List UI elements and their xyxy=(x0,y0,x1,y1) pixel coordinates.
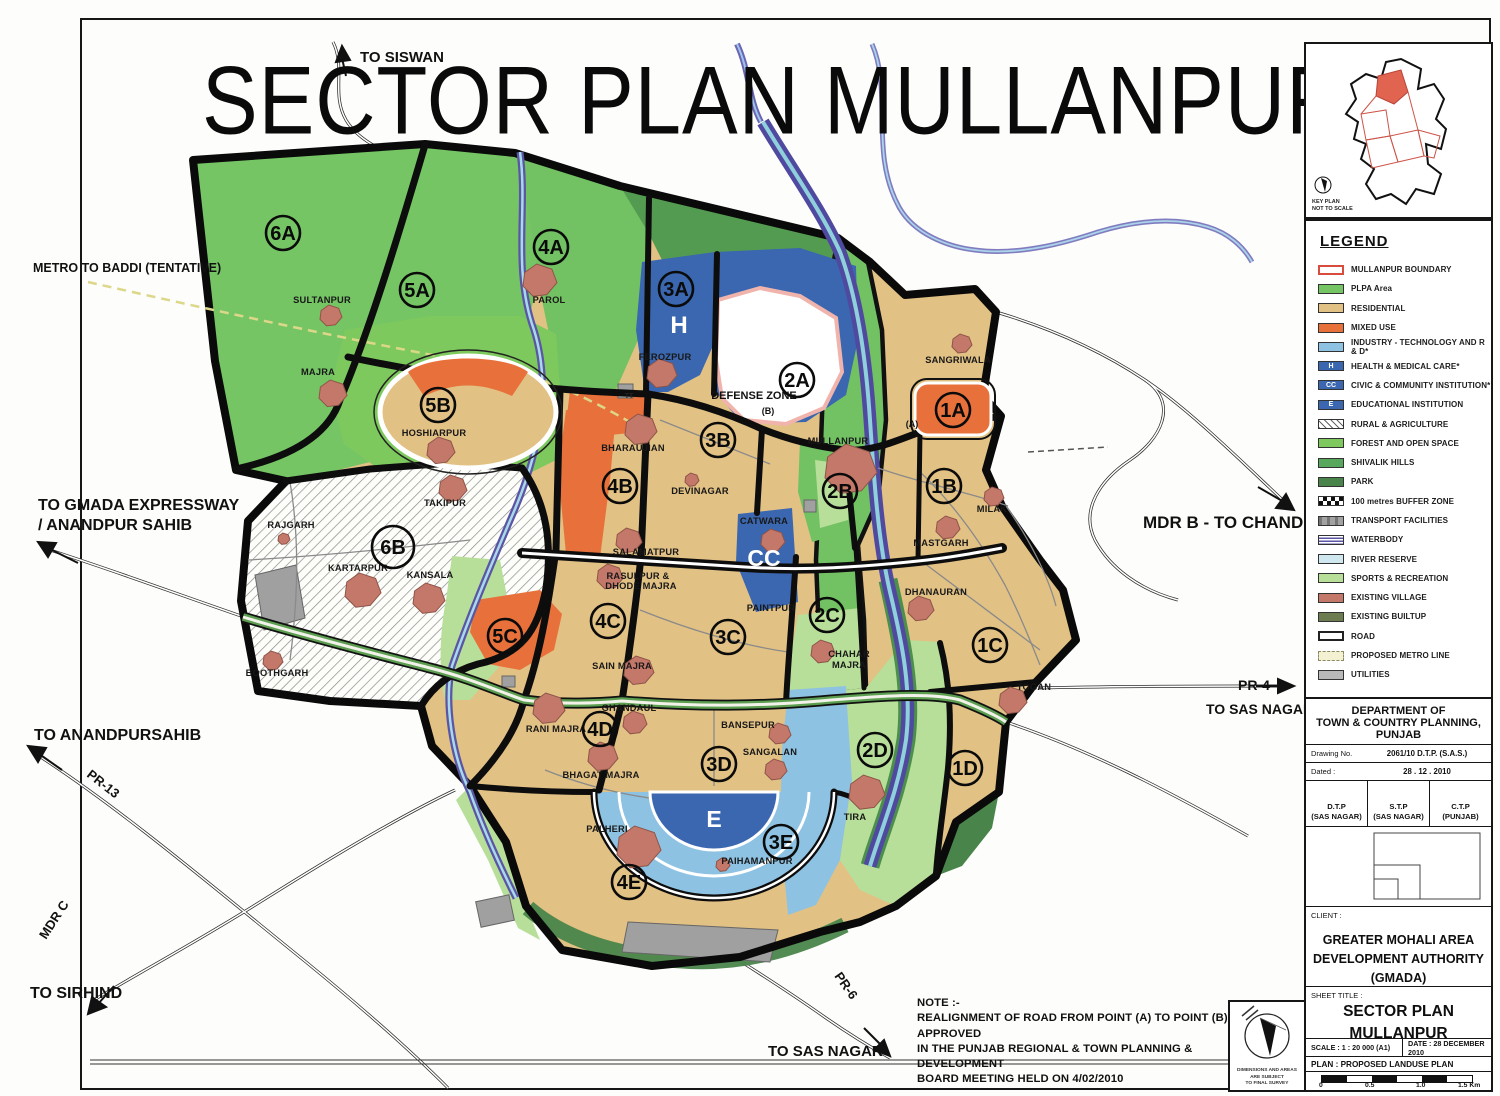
village-label: PALHERI xyxy=(586,824,628,834)
legend-label: EXISTING VILLAGE xyxy=(1351,593,1427,602)
road-label: TO SAS NAGAR xyxy=(1206,701,1313,717)
sector-label: 1A xyxy=(940,400,966,422)
note-line: IN THE PUNJAB REGIONAL & TOWN PLANNING &… xyxy=(917,1042,1257,1073)
scalebar-0: 0 xyxy=(1319,1082,1323,1089)
village-label: CATWARA xyxy=(740,516,788,526)
zone-label: E xyxy=(706,806,721,832)
drawing-no-row: Drawing No. 2061/10 D.T.P. (S.A.S.) xyxy=(1306,745,1491,763)
village-label: PAIHAMANPUR xyxy=(721,856,792,866)
village-label: SULTANPUR xyxy=(293,295,351,305)
road-label: MDR C xyxy=(36,897,72,941)
sector-label: 5B xyxy=(425,395,451,417)
village-label: MULLANPUR xyxy=(808,436,869,446)
legend-label: FOREST AND OPEN SPACE xyxy=(1351,439,1459,448)
legend-item: RURAL & AGRICULTURE xyxy=(1318,414,1491,433)
landuse-map: SULTANPURMAJRAPAROLFEROZPURSANGRIWALAMUL… xyxy=(0,0,1500,1096)
village-label: BHARAUJIAN xyxy=(601,443,665,453)
zone-label: H xyxy=(780,306,797,333)
sheet-title-row: SHEET TITLE : SECTOR PLAN MULLANPUR xyxy=(1306,987,1491,1039)
village-label: CHAHAR xyxy=(828,649,870,659)
legend-swatch xyxy=(1318,284,1344,294)
village-label: FEROZPUR xyxy=(639,352,692,362)
client-line2: DEVELOPMENT AUTHORITY xyxy=(1306,950,1491,969)
legend-item: EXISTING VILLAGE xyxy=(1318,588,1491,607)
legend-item: PARK xyxy=(1318,472,1491,491)
legend-swatch xyxy=(1318,554,1344,564)
map-note: NOTE :-REALIGNMENT OF ROAD FROM POINT (A… xyxy=(917,996,1257,1088)
keyplan-north-icon xyxy=(1315,177,1331,193)
village-label: SANGALAN xyxy=(743,747,797,757)
client-label: CLIENT : xyxy=(1311,911,1342,920)
sector-label: 1D xyxy=(952,758,978,780)
date-value: DATE : 28 DECEMBER 2010 xyxy=(1403,1039,1491,1056)
legend-swatch-glyph: CC xyxy=(1326,382,1336,389)
legend-item: EXISTING BUILTUP xyxy=(1318,607,1491,626)
dated-label: Dated : xyxy=(1306,767,1363,776)
legend-title: LEGEND xyxy=(1320,233,1491,250)
legend-swatch xyxy=(1318,631,1344,641)
officer-cell: S.T.P (SAS NAGAR) xyxy=(1368,781,1430,826)
legend-item: SPORTS & RECREATION xyxy=(1318,569,1491,588)
sector-label: 2B xyxy=(827,481,853,503)
legend-swatch: CC xyxy=(1318,380,1344,390)
legend-item: PLPA Area xyxy=(1318,279,1491,298)
legend-label: MULLANPUR BOUNDARY xyxy=(1351,265,1452,274)
client-row: CLIENT : GREATER MOHALI AREA DEVELOPMENT… xyxy=(1306,907,1491,987)
legend-swatch: E xyxy=(1318,400,1344,410)
key-plan-inset: KEY PLAN NOT TO SCALE xyxy=(1304,42,1493,219)
village-label: RANI MAJRA xyxy=(526,724,586,734)
legend-label: PROPOSED METRO LINE xyxy=(1351,651,1450,660)
legend-swatch xyxy=(1318,419,1344,429)
dated-row: Dated : 28 . 12 . 2010 xyxy=(1306,763,1491,781)
sector-label: 3A xyxy=(663,279,689,301)
village-label: HOSHIARPUR xyxy=(402,428,467,438)
legend-items: MULLANPUR BOUNDARYPLPA AreaRESIDENTIALMI… xyxy=(1318,260,1491,685)
officers-row: D.T.P (SAS NAGAR)S.T.P (SAS NAGAR)C.T.P … xyxy=(1306,781,1491,827)
road-label: / ANANDPUR SAHIB xyxy=(38,517,192,534)
legend-item: PROPOSED METRO LINE xyxy=(1318,646,1491,665)
legend-label: ROAD xyxy=(1351,632,1375,641)
region-gray-5c xyxy=(502,676,515,687)
legend-label: TRANSPORT FACILITIES xyxy=(1351,516,1448,525)
scalebar-15: 1.5 Km xyxy=(1458,1082,1480,1089)
sector-label: 2C xyxy=(814,605,840,627)
village-label: SALAMATPUR xyxy=(613,547,679,557)
scale-bar xyxy=(1321,1075,1473,1083)
keyplan-caption-line1: KEY PLAN xyxy=(1312,199,1353,206)
scalebar-05: 0.5 xyxy=(1365,1082,1374,1089)
legend-label: SHIVALIK HILLS xyxy=(1351,458,1414,467)
zone-label: CC xyxy=(747,545,780,571)
legend-item: MIXED USE xyxy=(1318,318,1491,337)
sector-label: 2A xyxy=(784,370,810,392)
legend-panel: LEGEND MULLANPUR BOUNDARYPLPA AreaRESIDE… xyxy=(1304,219,1493,701)
scale-date-row: SCALE : 1 : 20 000 (A1) DATE : 28 DECEMB… xyxy=(1306,1039,1491,1057)
sector-label: 3E xyxy=(769,832,793,854)
village-label: TIRA xyxy=(844,812,867,822)
legend-swatch xyxy=(1318,303,1344,313)
legend-item: RIVER RESERVE xyxy=(1318,549,1491,568)
sector-label: 1C xyxy=(977,635,1003,657)
note-line: BOARD MEETING HELD ON 4/02/2010 xyxy=(917,1072,1257,1087)
legend-label: EDUCATIONAL INSTITUTION xyxy=(1351,400,1463,409)
village-label: MILAK xyxy=(977,504,1008,514)
legend-swatch xyxy=(1318,516,1344,526)
north-arrow-box: DIMENSIONS AND AREASARE SUBJECTTO FINAL … xyxy=(1228,1000,1306,1092)
village-label: KANSALA xyxy=(407,570,454,580)
legend-swatch xyxy=(1318,265,1344,275)
village-label: BOOTHGARH xyxy=(246,668,309,678)
legend-item: ROAD xyxy=(1318,627,1491,646)
village-label: GHANDAUL xyxy=(602,703,657,713)
village-label: SAIN MAJRA xyxy=(592,661,652,671)
village-label: RAJGARH xyxy=(267,520,314,530)
north-note-line: TO FINAL SURVEY xyxy=(1230,1081,1304,1087)
sector-label: 4E xyxy=(617,872,641,894)
sector-label: 4C xyxy=(595,611,621,633)
legend-label: HEALTH & MEDICAL CARE* xyxy=(1351,362,1460,371)
dept-line2: TOWN & COUNTRY PLANNING, PUNJAB xyxy=(1306,717,1491,741)
zone-label: (A) xyxy=(906,419,919,429)
region-defense-zone xyxy=(716,288,842,424)
legend-swatch xyxy=(1318,342,1344,352)
sector-label: 4A xyxy=(538,237,564,259)
officer-cell: D.T.P (SAS NAGAR) xyxy=(1306,781,1368,826)
legend-label: SPORTS & RECREATION xyxy=(1351,574,1448,583)
north-arrow-icon xyxy=(1230,1002,1300,1064)
legend-label: INDUSTRY - TECHNOLOGY AND R & D* xyxy=(1351,338,1491,356)
legend-swatch: H xyxy=(1318,361,1344,371)
legend-swatch xyxy=(1318,573,1344,583)
title-block: DEPARTMENT OF TOWN & COUNTRY PLANNING, P… xyxy=(1304,697,1493,1092)
sector-plan-sheet: SULTANPURMAJRAPAROLFEROZPURSANGRIWALAMUL… xyxy=(0,0,1500,1096)
legend-item: EEDUCATIONAL INSTITUTION xyxy=(1318,395,1491,414)
drawing-no-label: Drawing No. xyxy=(1306,749,1363,758)
legend-swatch-glyph: H xyxy=(1328,363,1333,370)
village-label: RASULPUR & xyxy=(607,571,670,581)
legend-item: CCCIVIC & COMMUNITY INSTITUTION* xyxy=(1318,376,1491,395)
legend-item: UTILITIES xyxy=(1318,665,1491,684)
client-line3: (GMADA) xyxy=(1306,969,1491,988)
legend-swatch xyxy=(1318,535,1344,545)
legend-item: RESIDENTIAL xyxy=(1318,299,1491,318)
region-gray-2b xyxy=(804,500,816,512)
legend-item: INDUSTRY - TECHNOLOGY AND R & D* xyxy=(1318,337,1491,356)
sheet-title-label: SHEET TITLE : xyxy=(1311,991,1362,1000)
north-box-note: DIMENSIONS AND AREASARE SUBJECTTO FINAL … xyxy=(1230,1068,1304,1087)
key-plan-map xyxy=(1306,44,1487,213)
legend-swatch xyxy=(1318,458,1344,468)
road-label: METRO TO BADDI (TENTATIVE) xyxy=(33,261,221,275)
road-label: TO ANANDPURSAHIB xyxy=(34,727,201,744)
village-label: KARTARPUR xyxy=(328,563,388,573)
legend-swatch xyxy=(1318,612,1344,622)
road-label: TO GMADA EXPRESSWAY xyxy=(38,497,240,514)
legend-swatch xyxy=(1318,496,1344,506)
page-title: SECTOR PLAN MULLANPUR xyxy=(202,46,1347,157)
legend-swatch xyxy=(1318,438,1344,448)
region-gray-4e xyxy=(476,895,515,928)
road-label: PR-6 xyxy=(832,969,861,1002)
legend-label: PARK xyxy=(1351,477,1373,486)
client-name: GREATER MOHALI AREA DEVELOPMENT AUTHORIT… xyxy=(1306,931,1491,987)
scale-value: SCALE : 1 : 20 000 (A1) xyxy=(1306,1039,1403,1056)
village-label: MAJRA xyxy=(301,367,335,377)
note-line: NOTE :- xyxy=(917,996,1257,1011)
legend-label: RURAL & AGRICULTURE xyxy=(1351,420,1448,429)
village-label: MAJRA xyxy=(832,660,866,670)
village-label: PAINTPUR xyxy=(747,603,796,613)
sector-label: 3B xyxy=(705,430,731,452)
village-label: BHAGAT MAJRA xyxy=(562,770,639,780)
legend-label: EXISTING BUILTUP xyxy=(1351,612,1426,621)
legend-swatch xyxy=(1318,477,1344,487)
scalebar-10: 1.0 xyxy=(1416,1082,1425,1089)
sector-label: 5A xyxy=(404,280,430,302)
officer-cell: C.T.P (PUNJAB) xyxy=(1430,781,1491,826)
dept-line1: DEPARTMENT OF xyxy=(1306,705,1491,717)
zone-label: H xyxy=(670,312,687,339)
legend-item: WATERBODY xyxy=(1318,530,1491,549)
sector-label: 6B xyxy=(380,537,406,559)
legend-swatch xyxy=(1318,651,1344,661)
legend-label: CIVIC & COMMUNITY INSTITUTION* xyxy=(1351,381,1490,390)
drawing-no-value: 2061/10 D.T.P. (S.A.S.) xyxy=(1363,749,1491,758)
sector-label: 4B xyxy=(607,476,633,498)
legend-label: PLPA Area xyxy=(1351,284,1392,293)
village-label: PAROL xyxy=(533,295,566,305)
sector-label: 2D xyxy=(862,740,888,762)
legend-label: WATERBODY xyxy=(1351,535,1403,544)
dated-value: 28 . 12 . 2010 xyxy=(1363,767,1491,776)
plan-row: PLAN : PROPOSED LANDUSE PLAN xyxy=(1306,1057,1491,1072)
village-label: MASTGARH xyxy=(913,538,968,548)
note-line: REALIGNMENT OF ROAD FROM POINT (A) TO PO… xyxy=(917,1011,1257,1042)
road-label: PR-13 xyxy=(84,767,122,802)
legend-swatch xyxy=(1318,670,1344,680)
sector-label: 5C xyxy=(492,626,518,648)
zone-label: (B) xyxy=(762,406,775,416)
legend-label: UTILITIES xyxy=(1351,670,1390,679)
north-note-line: DIMENSIONS AND AREAS xyxy=(1230,1068,1304,1074)
legend-swatch xyxy=(1318,593,1344,603)
scalebar-row: 0 0.5 1.0 1.5 Km xyxy=(1306,1072,1491,1090)
legend-item: FOREST AND OPEN SPACE xyxy=(1318,434,1491,453)
zone-label: TT xyxy=(625,393,634,400)
keyplan-caption-line2: NOT TO SCALE xyxy=(1312,206,1353,213)
village-label: TAKIPUR xyxy=(424,498,466,508)
legend-label: 100 metres BUFFER ZONE xyxy=(1351,497,1454,506)
village-label: BANSEPUR xyxy=(721,720,775,730)
village-label: DEVINAGAR xyxy=(671,486,729,496)
sector-label: 3C xyxy=(715,627,741,649)
keyplan-caption: KEY PLAN NOT TO SCALE xyxy=(1312,199,1353,213)
legend-item: TRANSPORT FACILITIES xyxy=(1318,511,1491,530)
sector-label: 4D xyxy=(587,719,613,741)
nested-area-diagram xyxy=(1306,827,1487,905)
village-label: TOGAN xyxy=(1017,682,1051,692)
legend-item: SHIVALIK HILLS xyxy=(1318,453,1491,472)
village-label: DHANAURAN xyxy=(905,587,967,597)
road-label: TO SAS NAGAR xyxy=(768,1043,883,1060)
legend-item: 100 metres BUFFER ZONE xyxy=(1318,492,1491,511)
sheet-title-line1: SECTOR PLAN xyxy=(1306,1001,1491,1023)
legend-label: RIVER RESERVE xyxy=(1351,555,1417,564)
client-line1: GREATER MOHALI AREA xyxy=(1306,931,1491,950)
sector-label: 1B xyxy=(931,476,957,498)
area-diagram xyxy=(1306,827,1491,907)
zone-label: DEFENSE ZONE xyxy=(711,390,797,402)
village-label: SANGRIWALA xyxy=(925,355,991,365)
sector-label: 6A xyxy=(270,223,296,245)
legend-item: HHEALTH & MEDICAL CARE* xyxy=(1318,356,1491,375)
department-header: DEPARTMENT OF TOWN & COUNTRY PLANNING, P… xyxy=(1306,699,1491,745)
sector-label: 3D xyxy=(706,754,732,776)
legend-swatch xyxy=(1318,323,1344,333)
legend-label: RESIDENTIAL xyxy=(1351,304,1405,313)
legend-swatch-glyph: E xyxy=(1329,401,1334,408)
legend-label: MIXED USE xyxy=(1351,323,1396,332)
village-label: DHODE MAJRA xyxy=(605,581,676,591)
legend-item: MULLANPUR BOUNDARY xyxy=(1318,260,1491,279)
